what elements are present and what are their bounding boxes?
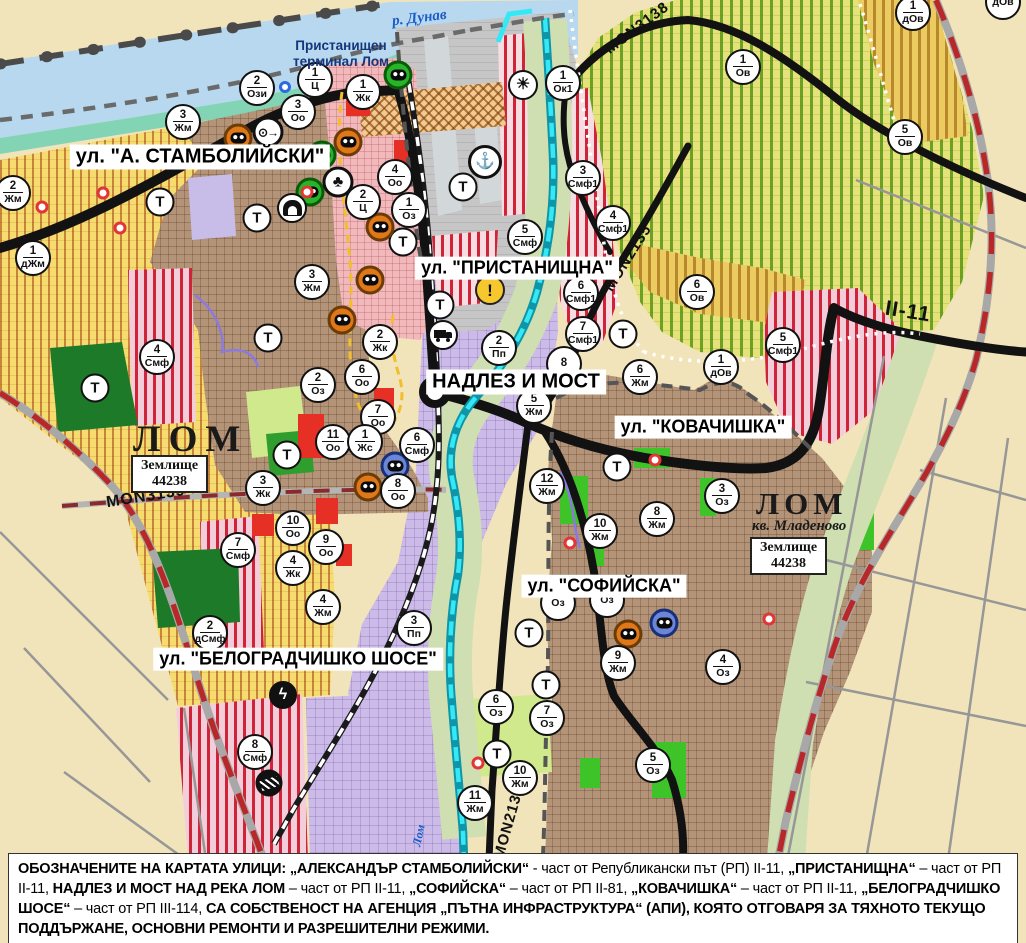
anchor-icon: ⚓	[468, 145, 502, 179]
zone-marker: 5Смф	[507, 219, 543, 255]
footer-segment: „КОВАЧИШКА“	[631, 881, 737, 897]
truck-icon	[428, 320, 458, 350]
zone-marker: 6Оз	[478, 689, 514, 725]
footer-segment: „ПРИСТАНИЩНА“	[788, 861, 916, 877]
sun-icon: ☀	[508, 70, 538, 100]
zone-marker: 2Оз	[300, 367, 336, 403]
zone-marker: 8Смф	[237, 734, 273, 770]
t-stop-marker: Т	[609, 320, 638, 349]
footer-segment: – част от РП III-114,	[70, 901, 206, 917]
footer-note: ОБОЗНАЧЕНИТЕ НА КАРТАТА УЛИЦИ: „АЛЕКСАНД…	[8, 853, 1018, 943]
zone-marker: 2Ц	[345, 184, 381, 220]
mask-icon	[354, 473, 383, 502]
footer-segment: – част от РП II-81,	[506, 881, 631, 897]
zone-marker: 2Пп	[481, 330, 517, 366]
t-stop-marker: Т	[449, 173, 478, 202]
zone-marker: 3Пп	[396, 610, 432, 646]
zone-marker: 9Жм	[600, 645, 636, 681]
zone-marker: 6Смф1	[563, 275, 599, 311]
zone-marker: 4Жм	[305, 589, 341, 625]
zone-marker: 1Ов	[725, 49, 761, 85]
reddot-icon	[114, 222, 127, 235]
t-stop-marker: Т	[81, 374, 110, 403]
zone-marker: 6Жм	[622, 359, 658, 395]
footer-text: ОБОЗНАЧЕНИТЕ НА КАРТАТА УЛИЦИ: „АЛЕКСАНД…	[18, 859, 1008, 939]
zone-marker: 11Оо	[315, 424, 351, 460]
zone-marker: 1Оз	[391, 192, 427, 228]
street-label: ул. "А. СТАМБОЛИЙСКИ"	[70, 145, 330, 170]
zone-marker: 3Смф1	[565, 160, 601, 196]
mask-icon	[328, 306, 357, 335]
zone-marker: 3Жм	[294, 264, 330, 300]
zone-marker: 1Жс	[347, 424, 383, 460]
footer-segment: „СОФИЙСКА“	[409, 881, 506, 897]
footer-segment: - част от Републикански път (РП) II-11,	[529, 861, 788, 877]
t-stop-marker: Т	[515, 619, 544, 648]
zone-marker: 3Оо	[280, 94, 316, 130]
zone-marker: 3Жк	[245, 470, 281, 506]
zone-marker: 8Оо	[380, 473, 416, 509]
zone-marker: 3Оз	[704, 478, 740, 514]
zone-marker: 5Оз	[635, 747, 671, 783]
zone-marker: 8Жм	[639, 501, 675, 537]
t-stop-marker: Т	[146, 188, 175, 217]
t-stop-marker: Т	[254, 324, 283, 353]
zemlishte-box-west: Землище 44238	[131, 455, 208, 493]
street-label: ул. "ПРИСТАНИЩНА"	[415, 257, 619, 280]
t-stop-marker: Т	[426, 291, 455, 320]
zone-marker: 10Оо	[275, 510, 311, 546]
zone-marker: 2Ози	[239, 70, 275, 106]
street-label: НАДЛЕЗ И МОСТ	[426, 370, 606, 395]
bluering-icon	[279, 81, 291, 93]
footer-segment: НАДЛЕЗ И МОСТ НАД РЕКА ЛОМ	[53, 881, 285, 897]
t-stop-marker: Т	[532, 671, 561, 700]
source-icon: ⊙→	[253, 117, 284, 148]
zone-marker: 7Оз	[529, 700, 565, 736]
footer-segment: – част от РП II-11,	[285, 881, 409, 897]
zone-marker: 11Жм	[457, 785, 493, 821]
street-label: ул. "БЕЛОГРАДЧИШКО ШОСЕ"	[153, 648, 443, 671]
street-label: ул. "СОФИЙСКА"	[521, 575, 686, 598]
port-terminal-label: Пристанищен терминал Лом	[277, 38, 405, 69]
zone-marker: 7Смф1	[565, 316, 601, 352]
zemlishte-word: Землище	[760, 540, 817, 556]
mask-icon	[650, 609, 679, 638]
street-label: ул. "КОВАЧИШКА"	[615, 416, 792, 439]
zone-marker: 1дЖм	[15, 240, 51, 276]
zone-marker: 6Смф	[399, 427, 435, 463]
zone-marker: 1Жк	[345, 74, 381, 110]
t-stop-marker: Т	[603, 453, 632, 482]
reddot-icon	[564, 537, 577, 550]
kvartal-mladenovo-label: кв. Младеново	[752, 518, 846, 535]
zone-marker: 4Жк	[275, 550, 311, 586]
t-stop-marker: Т	[273, 441, 302, 470]
reddot-icon	[763, 613, 776, 626]
zone-marker: 10Жм	[502, 760, 538, 796]
mask-icon	[334, 128, 363, 157]
lom-city-label-east: ЛОМ	[756, 486, 847, 522]
footer-segment: – част от РП II-11,	[737, 881, 861, 897]
warning-icon: !	[475, 275, 505, 305]
urban-plan-map: р. Дунав Пристанищен терминал Лом ЛОМ ЛО…	[0, 0, 1026, 943]
zone-marker: 9Оо	[308, 529, 344, 565]
reddot-icon	[36, 201, 49, 214]
railcross-icon	[256, 770, 283, 797]
zemlishte-box-east: Землище 44238	[750, 537, 827, 575]
zone-marker: 12Жм	[529, 468, 565, 504]
zemlishte-word: Землище	[141, 458, 198, 474]
zemlishte-number: 44238	[760, 556, 817, 572]
reddot-icon	[649, 454, 662, 467]
zone-marker: 6Оо	[344, 359, 380, 395]
zone-marker: 3Жм	[165, 104, 201, 140]
zone-marker: 6Ов	[679, 274, 715, 310]
zone-marker: 10Жм	[582, 513, 618, 549]
reddot-icon	[301, 186, 314, 199]
zone-marker: 7Смф	[220, 532, 256, 568]
mask-icon	[356, 266, 385, 295]
footer-segment: ОБОЗНАЧЕНИТЕ НА КАРТАТА УЛИЦИ: „АЛЕКСАНД…	[18, 861, 529, 877]
zone-marker: 5Ов	[887, 119, 923, 155]
zone-marker: 5Смф1	[765, 327, 801, 363]
reddot-icon	[97, 187, 110, 200]
zone-marker: 4Смф1	[595, 205, 631, 241]
zone-marker: 1дОв	[703, 349, 739, 385]
zemlishte-number: 44238	[141, 474, 198, 490]
zone-marker: 4Оз	[705, 649, 741, 685]
zone-marker: 2Жк	[362, 324, 398, 360]
lightning-icon: ϟ	[269, 681, 297, 709]
zone-marker: 4Оо	[377, 159, 413, 195]
cave-icon	[277, 193, 307, 223]
zone-marker: 1Ок1	[545, 65, 581, 101]
zone-marker: 4Смф	[139, 339, 175, 375]
t-stop-marker: Т	[243, 204, 272, 233]
reddot-icon	[472, 757, 485, 770]
zone-marker: 2дСмф	[192, 615, 228, 651]
